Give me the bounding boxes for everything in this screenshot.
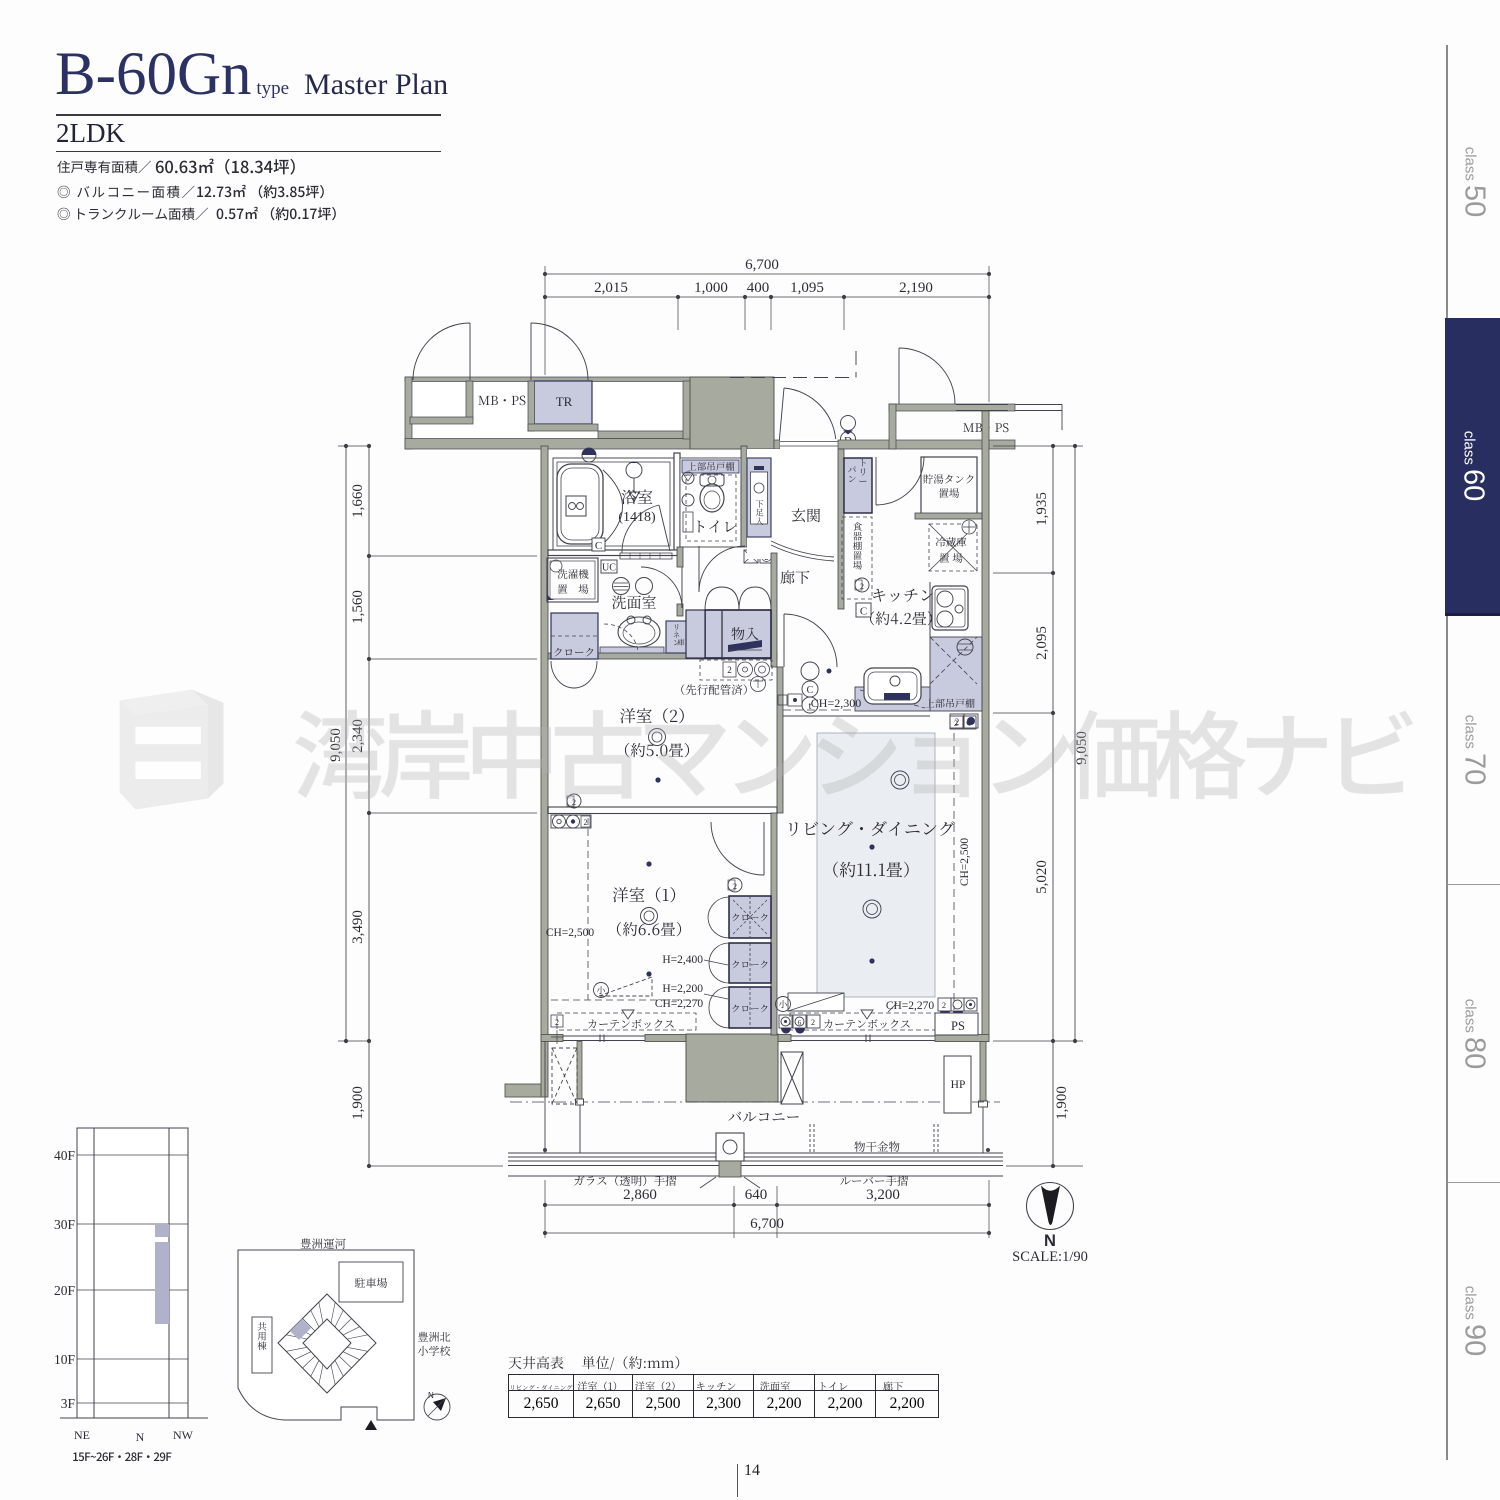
svg-text:6,700: 6,700	[745, 257, 779, 273]
svg-text:2,095: 2,095	[1034, 626, 1050, 660]
svg-text:CH=2,270: CH=2,270	[655, 998, 704, 1010]
svg-text:(1418): (1418)	[618, 510, 656, 525]
svg-text:C: C	[807, 685, 814, 696]
svg-text:3,490: 3,490	[350, 910, 366, 944]
svg-text:1,000: 1,000	[694, 280, 728, 296]
svg-text:H=2,400: H=2,400	[662, 954, 703, 966]
svg-text:HP: HP	[951, 1079, 966, 1091]
svg-text:2: 2	[584, 818, 588, 827]
svg-text:400: 400	[747, 280, 770, 296]
svg-text:2: 2	[811, 1018, 815, 1027]
svg-text:C: C	[860, 606, 867, 618]
svg-text:t: t	[809, 701, 812, 712]
svg-text:N: N	[1044, 1232, 1056, 1250]
svg-text:2,015: 2,015	[594, 280, 628, 296]
svg-text:2: 2	[727, 665, 732, 675]
svg-text:CH=2,500: CH=2,500	[546, 927, 595, 939]
svg-text:1,560: 1,560	[350, 590, 366, 624]
svg-text:UC: UC	[602, 563, 616, 574]
svg-text:2,860: 2,860	[623, 1187, 657, 1203]
svg-text:2,190: 2,190	[899, 280, 933, 296]
svg-text:2: 2	[954, 719, 958, 728]
svg-text:6,700: 6,700	[750, 1216, 784, 1232]
svg-text:N: N	[428, 1391, 434, 1400]
svg-text:CH=2,270: CH=2,270	[886, 1000, 935, 1012]
svg-text:1,935: 1,935	[1034, 492, 1050, 526]
svg-text:10F: 10F	[54, 1352, 76, 1367]
svg-text:1,900: 1,900	[350, 1086, 366, 1120]
svg-text:1,660: 1,660	[350, 484, 366, 518]
svg-text:C: C	[595, 540, 602, 552]
svg-text:NE: NE	[74, 1428, 90, 1442]
svg-text:H=2,200: H=2,200	[662, 983, 703, 995]
svg-text:2: 2	[733, 882, 737, 891]
svg-text:5,020: 5,020	[1034, 860, 1050, 894]
svg-text:1,900: 1,900	[1054, 1086, 1070, 1120]
svg-text:N: N	[136, 1430, 145, 1444]
svg-text:2: 2	[572, 798, 576, 807]
svg-text:SCALE:1/90: SCALE:1/90	[1012, 1249, 1088, 1265]
svg-text:20F: 20F	[54, 1283, 76, 1298]
svg-text:640: 640	[745, 1187, 768, 1203]
svg-text:6: 6	[798, 1019, 802, 1027]
svg-text:2: 2	[942, 1001, 946, 1010]
svg-text:3F: 3F	[61, 1396, 76, 1411]
svg-text:40F: 40F	[54, 1148, 76, 1163]
svg-text:CH=2,300: CH=2,300	[811, 696, 861, 710]
svg-text:PS: PS	[951, 1019, 965, 1033]
svg-text:CH=2,500: CH=2,500	[959, 838, 971, 887]
svg-text:2: 2	[860, 582, 864, 591]
svg-text:3,200: 3,200	[866, 1187, 900, 1203]
svg-text:1,095: 1,095	[790, 280, 824, 296]
svg-text:TR: TR	[556, 394, 573, 409]
svg-text:NW: NW	[173, 1428, 194, 1442]
svg-text:2: 2	[555, 1018, 559, 1027]
svg-text:30F: 30F	[54, 1217, 76, 1232]
